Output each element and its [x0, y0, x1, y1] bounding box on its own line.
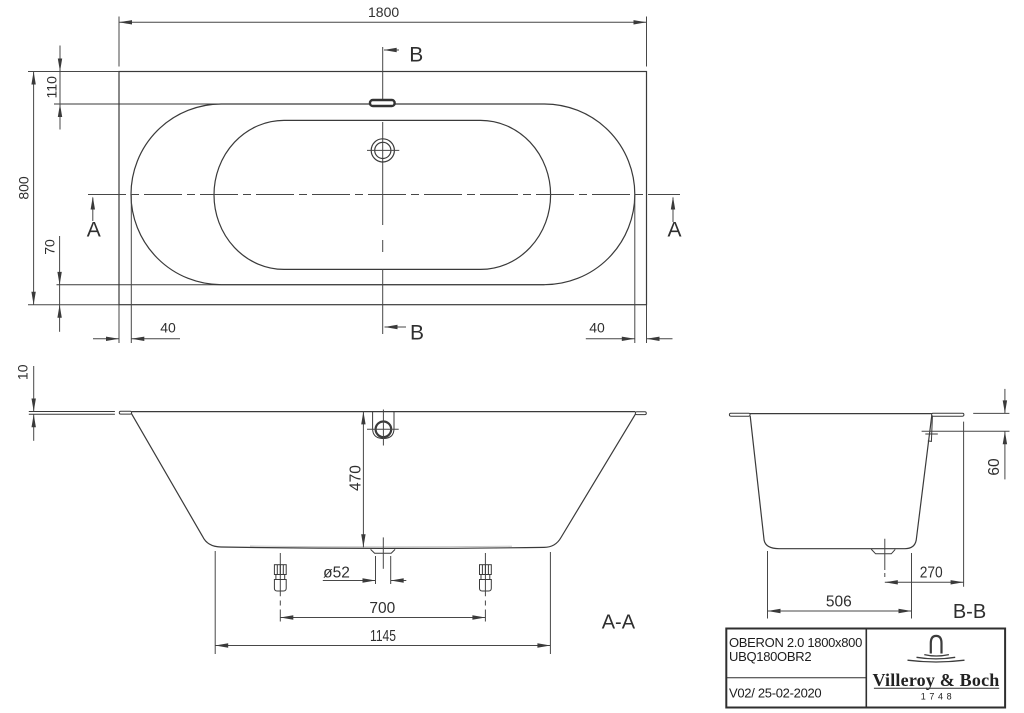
- svg-text:UBQ180OBR2: UBQ180OBR2: [729, 649, 811, 664]
- svg-text:700: 700: [369, 600, 395, 617]
- svg-text:10: 10: [15, 364, 31, 380]
- svg-text:40: 40: [160, 320, 176, 336]
- svg-text:B: B: [410, 322, 424, 345]
- svg-text:800: 800: [16, 176, 32, 200]
- svg-text:60: 60: [986, 458, 1003, 476]
- svg-text:B: B: [409, 44, 423, 67]
- svg-text:A: A: [667, 219, 681, 242]
- svg-text:B-B: B-B: [953, 601, 986, 623]
- svg-text:1145: 1145: [370, 628, 396, 645]
- svg-text:A-A: A-A: [602, 612, 636, 634]
- svg-text:70: 70: [42, 239, 58, 255]
- svg-text:1800: 1800: [368, 4, 399, 20]
- svg-text:270: 270: [920, 565, 943, 582]
- svg-text:506: 506: [826, 594, 852, 611]
- svg-text:40: 40: [589, 320, 605, 336]
- svg-text:OBERON 2.0 1800x800: OBERON 2.0 1800x800: [729, 635, 862, 650]
- svg-text:ø52: ø52: [323, 565, 350, 582]
- svg-text:110: 110: [44, 76, 60, 99]
- svg-text:1748: 1748: [921, 691, 955, 701]
- svg-text:V02/ 25-02-2020: V02/ 25-02-2020: [729, 685, 821, 700]
- svg-text:Villeroy & Boch: Villeroy & Boch: [873, 670, 1000, 690]
- svg-text:470: 470: [348, 465, 365, 491]
- svg-text:A: A: [87, 219, 101, 242]
